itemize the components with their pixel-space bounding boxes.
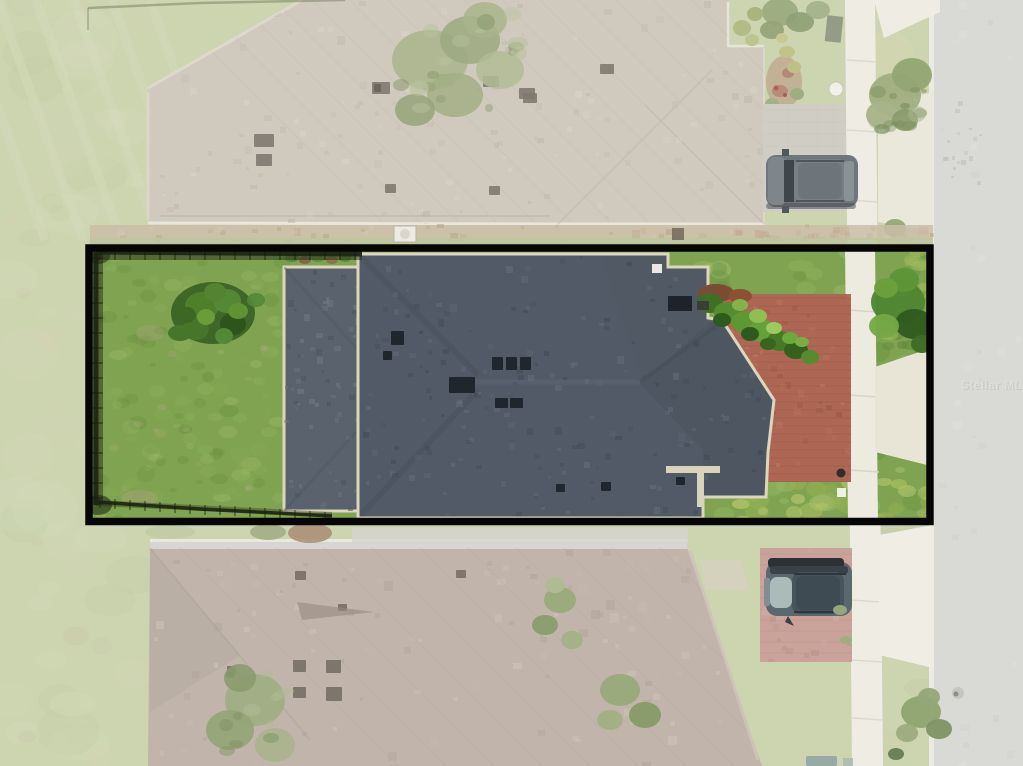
svg-text:Stellar MLS: Stellar MLS bbox=[961, 378, 1023, 392]
